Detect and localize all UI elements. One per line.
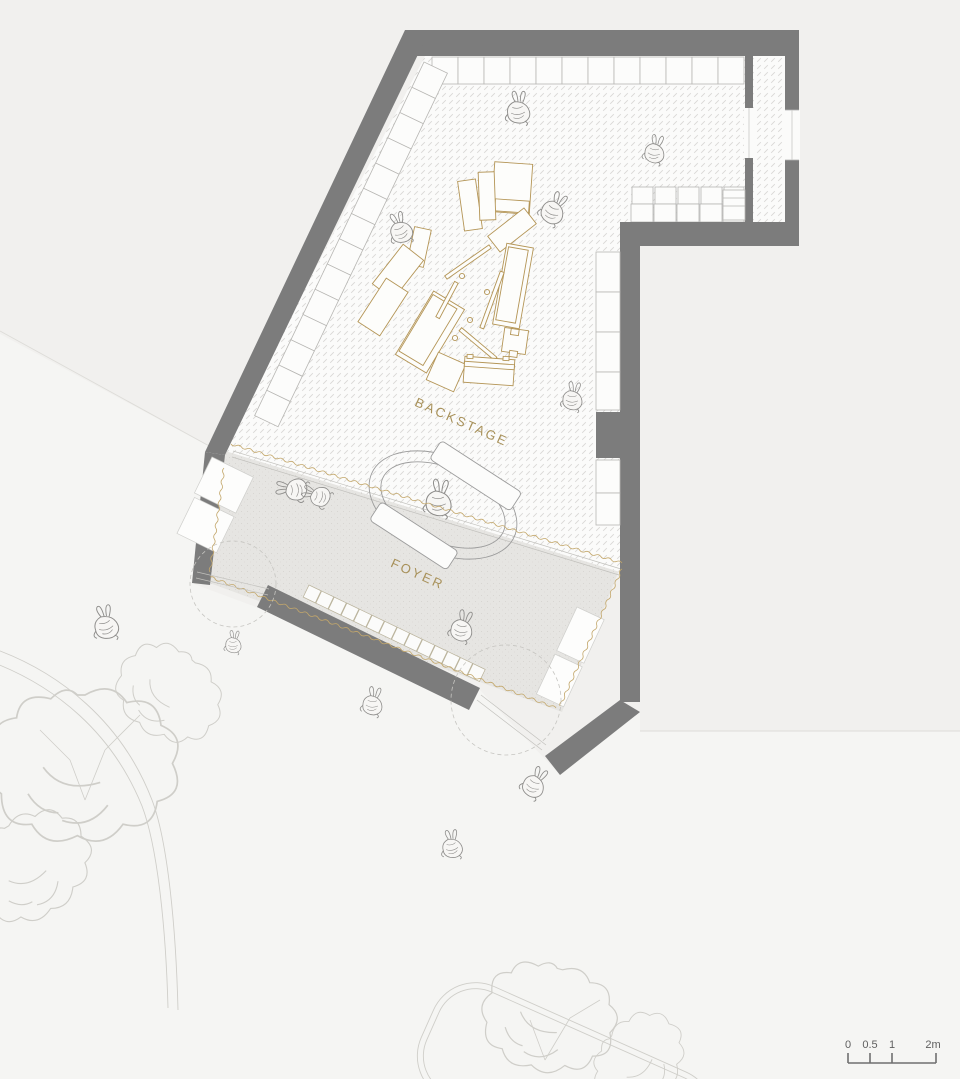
paneling-right bbox=[596, 252, 620, 525]
paneling-top bbox=[432, 57, 744, 84]
wall-pier bbox=[596, 412, 622, 458]
floor-plan-sheet: BACKSTAGE FOYER 0 0.5 1 2m bbox=[0, 0, 960, 1079]
floor-plan-drawing: BACKSTAGE FOYER 0 0.5 1 2m bbox=[0, 0, 960, 1079]
vestibule-shelf bbox=[723, 190, 745, 220]
wall-horizontal bbox=[620, 222, 799, 246]
wall-top bbox=[405, 30, 799, 56]
scale-tick-0: 0 bbox=[845, 1039, 851, 1051]
vestibule-floor bbox=[753, 56, 785, 222]
scale-tick-05: 0.5 bbox=[862, 1039, 877, 1051]
scale-tick-1: 1 bbox=[889, 1039, 895, 1051]
scale-tick-2m: 2m bbox=[925, 1039, 940, 1051]
wall-right-vertical bbox=[620, 246, 640, 702]
